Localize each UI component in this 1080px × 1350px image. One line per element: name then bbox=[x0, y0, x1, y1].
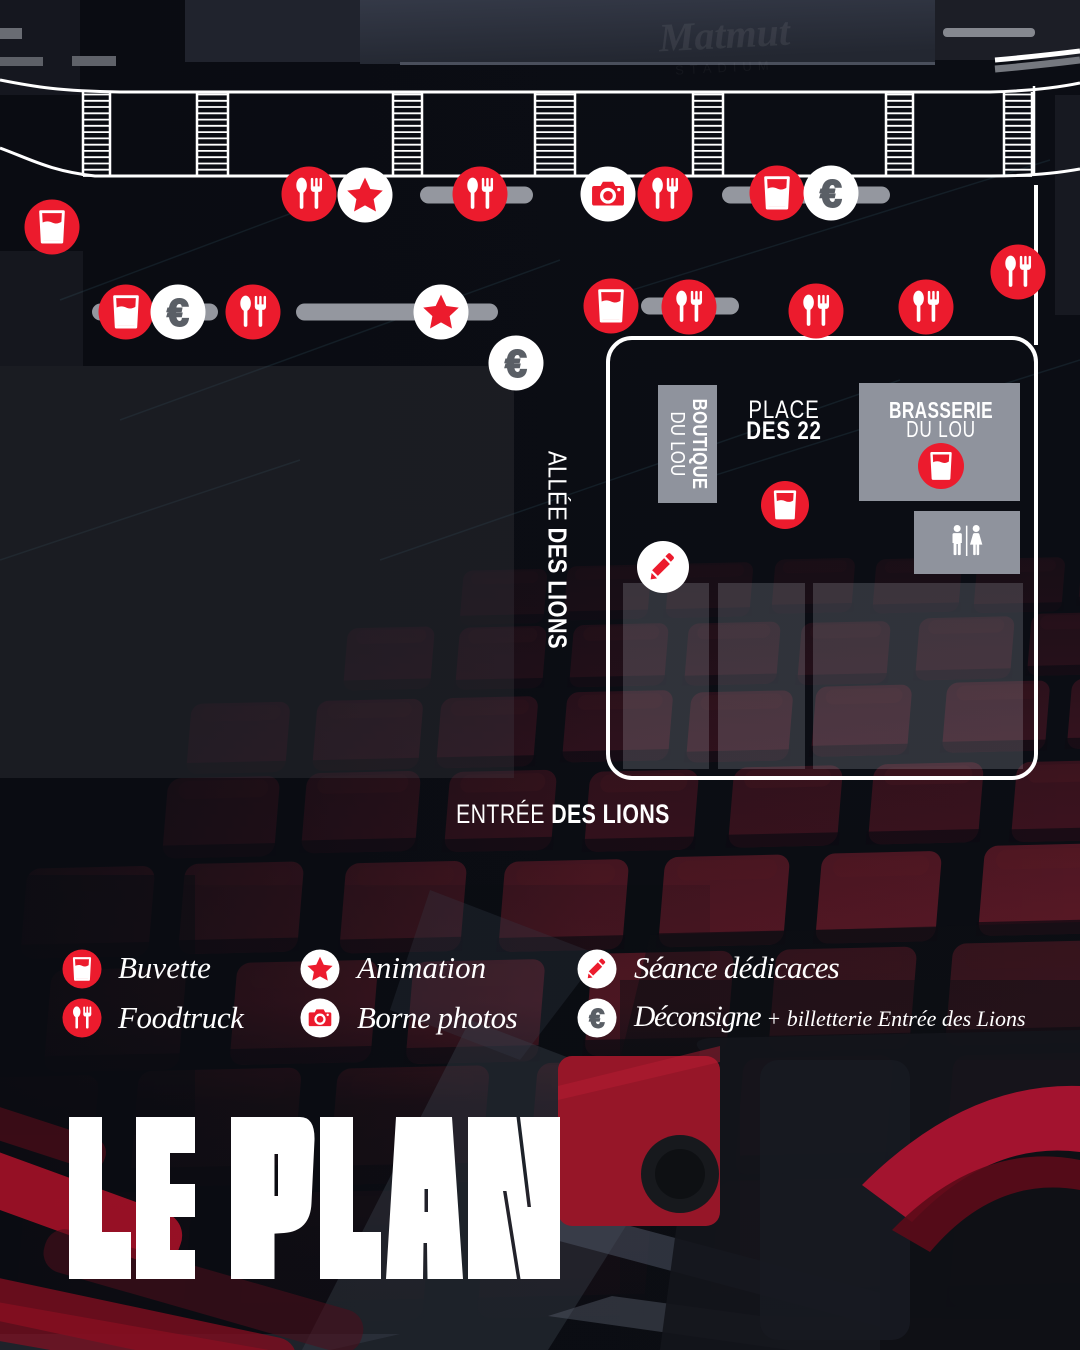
svg-text:€: € bbox=[820, 173, 841, 216]
svg-text:€: € bbox=[505, 343, 526, 386]
svg-text:€: € bbox=[589, 1003, 604, 1034]
svg-text:Matmut: Matmut bbox=[657, 9, 793, 61]
svg-text:€: € bbox=[167, 292, 188, 335]
